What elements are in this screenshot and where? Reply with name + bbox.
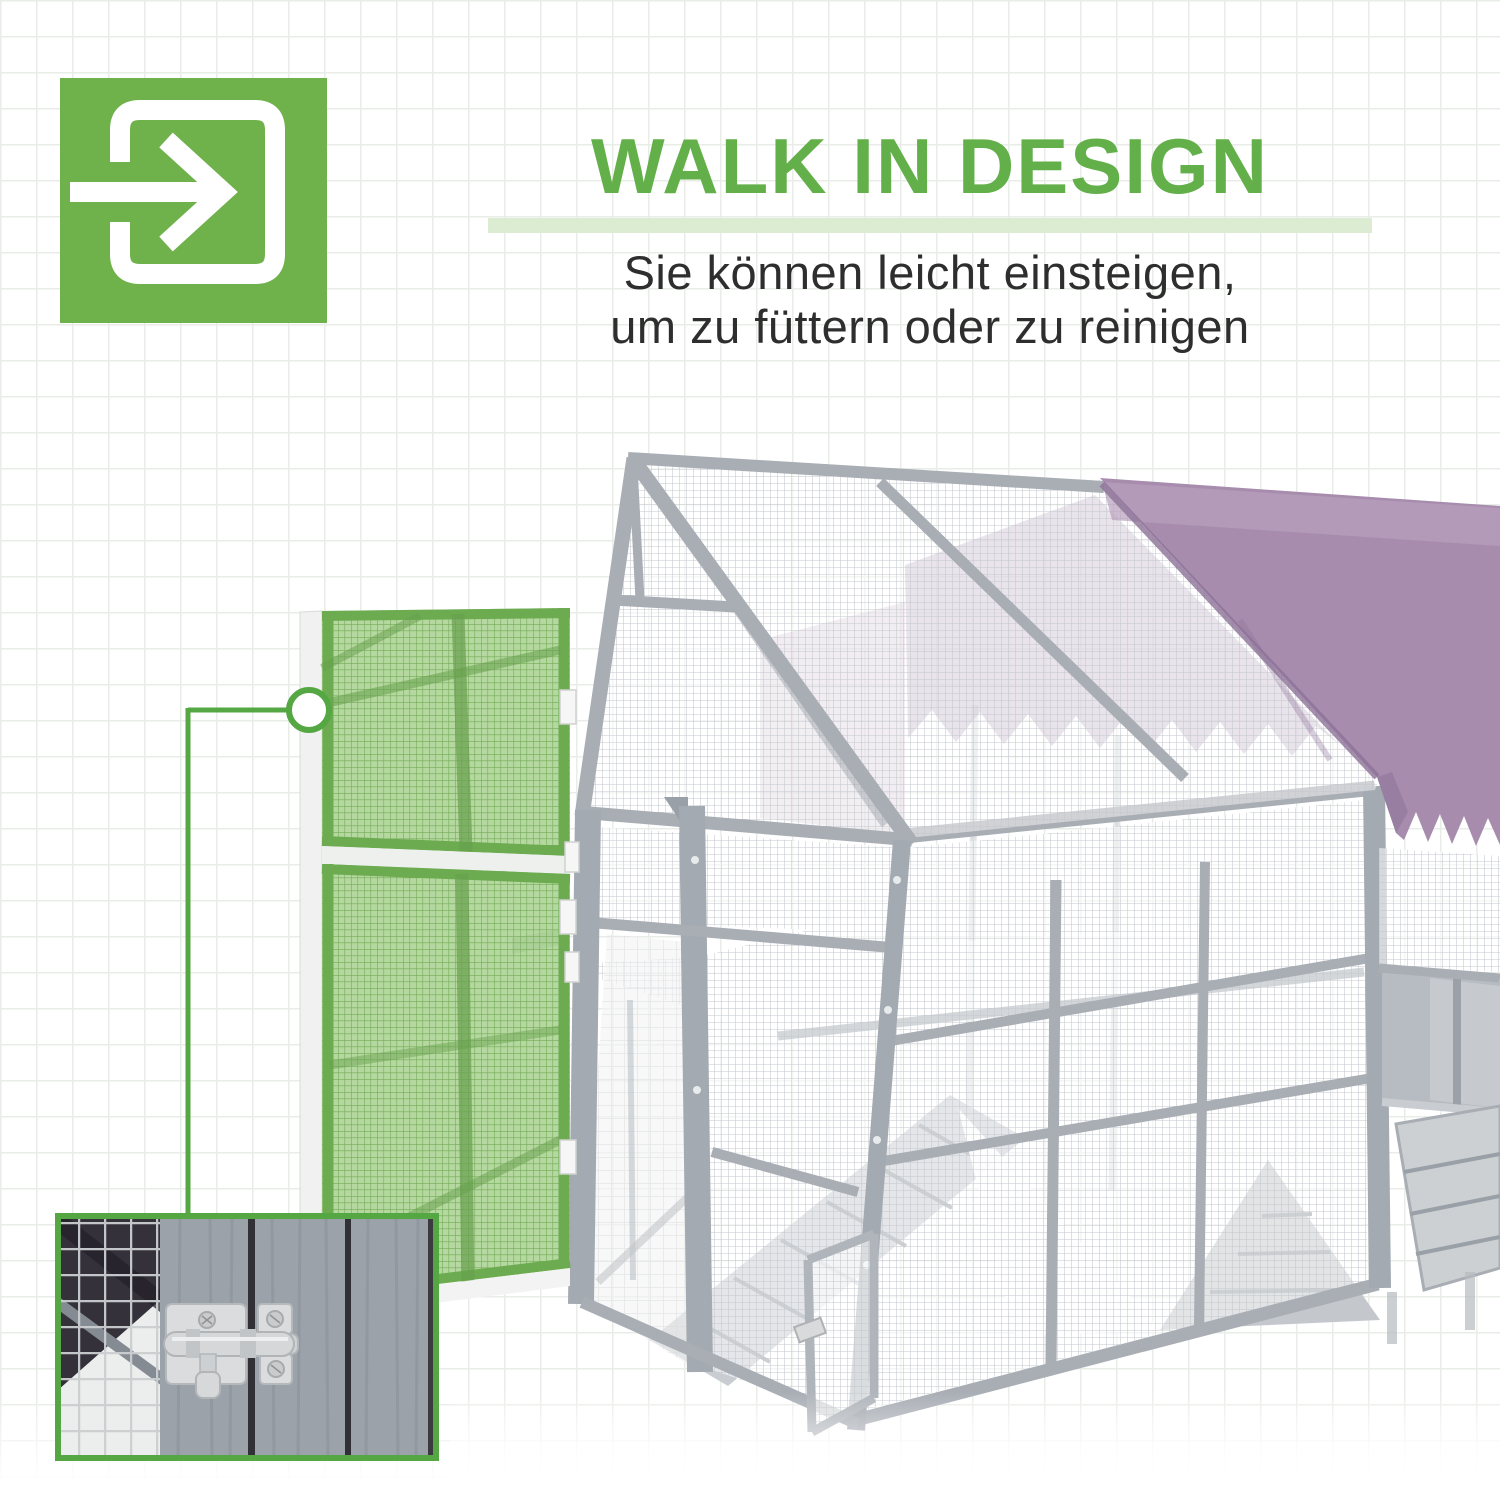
subtitle-line-1: Sie können leicht einsteigen,: [624, 246, 1237, 299]
product-feature-image: WALK IN DESIGN Sie können leicht einstei…: [0, 0, 1500, 1500]
page-title: WALK IN DESIGN: [430, 126, 1430, 208]
barrel-bolt-latch: [164, 1304, 298, 1398]
walk-in-arrow-icon: [60, 78, 327, 323]
subtitle: Sie können leicht einsteigen,um zu fütte…: [430, 246, 1430, 355]
door-latch-detail-photo: [54, 1210, 436, 1458]
feature-text-block: WALK IN DESIGN Sie können leicht einstei…: [430, 126, 1430, 355]
right-mesh-wall: [856, 786, 1380, 1420]
bottom-fade: [450, 1392, 1500, 1492]
title-underline: [488, 218, 1372, 233]
callout-marker-circle: [289, 690, 329, 730]
hutch-annex: [1379, 848, 1500, 1344]
subtitle-line-2: um zu füttern oder zu reinigen: [610, 300, 1249, 353]
enter-arrow-glyph: [60, 78, 327, 323]
